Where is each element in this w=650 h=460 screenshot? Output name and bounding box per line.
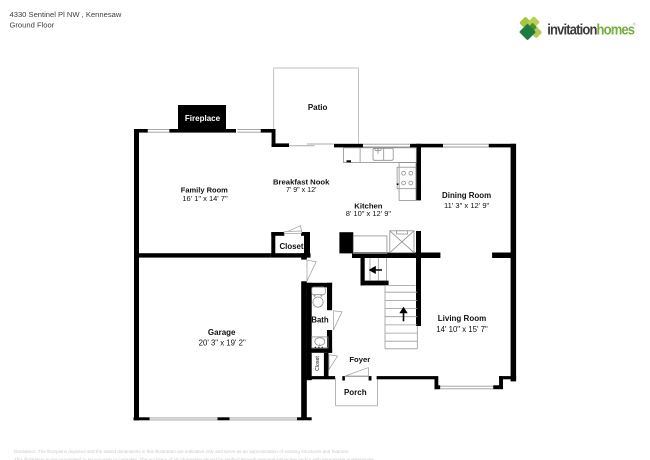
svg-text:Dining Room: Dining Room	[442, 191, 491, 200]
svg-text:16' 1" x 14' 7": 16' 1" x 14' 7"	[182, 194, 228, 203]
svg-text:14' 10" x 15' 7": 14' 10" x 15' 7"	[436, 325, 488, 334]
svg-text:Bath: Bath	[311, 315, 329, 324]
svg-text:Closet: Closet	[315, 356, 321, 371]
svg-text:Fireplace: Fireplace	[185, 114, 221, 123]
svg-text:4330 Sentinel Pl NW , Kennesaw: 4330 Sentinel Pl NW , Kennesaw	[10, 10, 122, 19]
svg-text:Living Room: Living Room	[438, 314, 486, 323]
svg-text:Garage: Garage	[208, 328, 236, 337]
svg-text:®: ®	[633, 22, 636, 27]
svg-text:11' 3" x 12' 9": 11' 3" x 12' 9"	[444, 201, 490, 210]
svg-text:Foyer: Foyer	[349, 355, 370, 364]
svg-text:Patio: Patio	[308, 103, 328, 112]
svg-text:Breakfast Nook: Breakfast Nook	[273, 177, 330, 186]
svg-text:Ground Floor: Ground Floor	[10, 21, 55, 30]
svg-text:Porch: Porch	[344, 388, 367, 397]
svg-text:20' 3" x 19' 2": 20' 3" x 19' 2"	[199, 339, 246, 348]
svg-text:Disclaimer: The floorplans dep: Disclaimer: The floorplans depicted and …	[14, 449, 349, 454]
svg-text:invitationhomes: invitationhomes	[547, 22, 635, 38]
svg-text:Closet: Closet	[279, 242, 303, 251]
svg-text:Family Room: Family Room	[181, 185, 228, 194]
svg-text:8' 10" x 12' 9": 8' 10" x 12' 9"	[346, 209, 392, 218]
svg-text:7' 9" x 12': 7' 9" x 12'	[286, 186, 316, 194]
